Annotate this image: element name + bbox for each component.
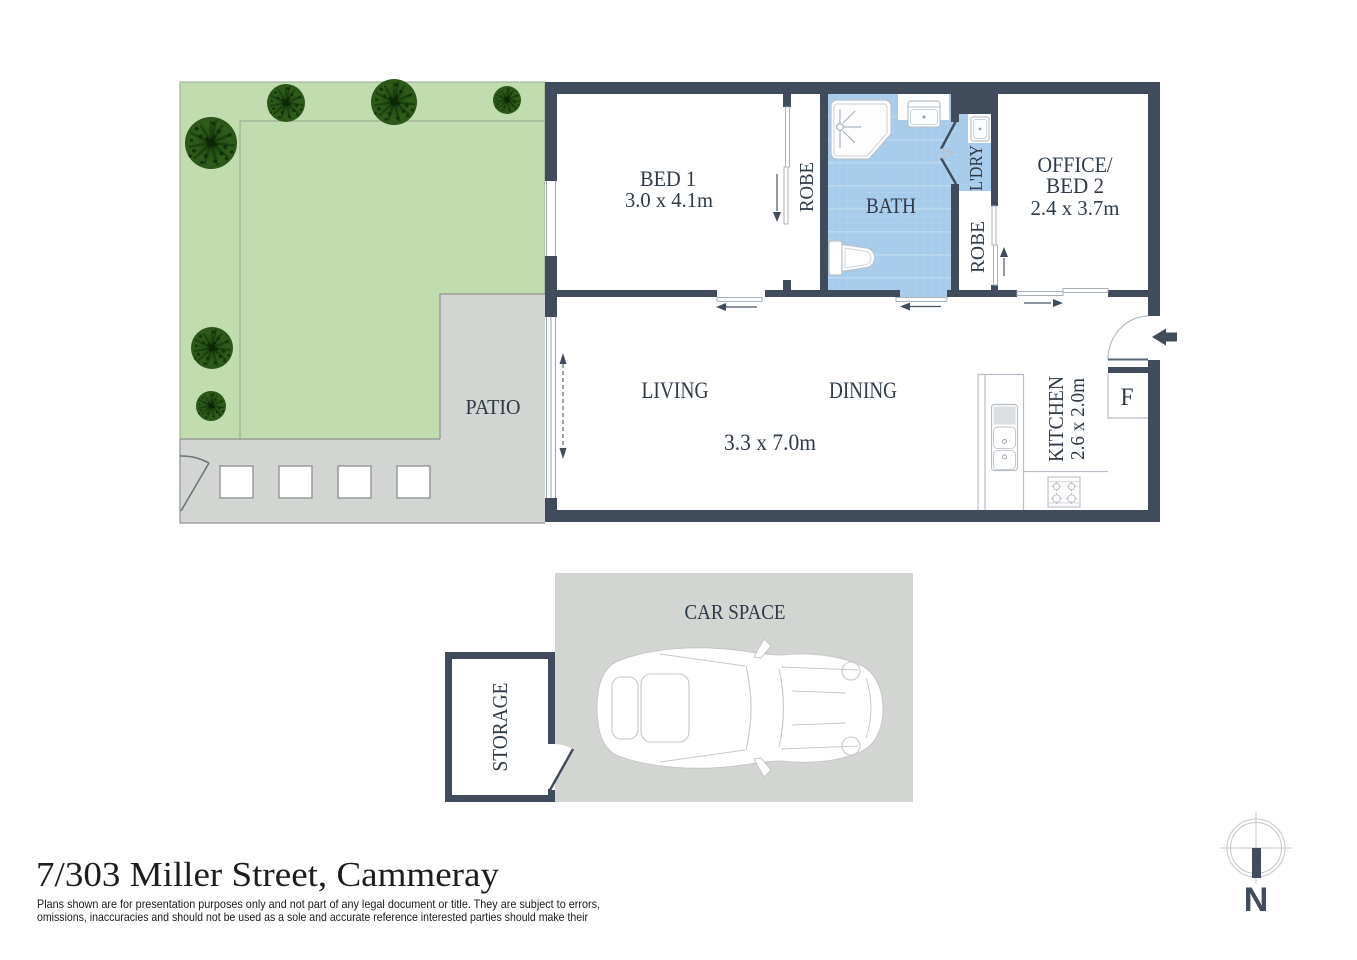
svg-text:2.6 x 2.0m: 2.6 x 2.0m xyxy=(1067,378,1089,460)
svg-text:F: F xyxy=(1121,384,1134,411)
svg-text:DINING: DINING xyxy=(829,378,897,403)
svg-text:N: N xyxy=(1244,881,1269,919)
svg-text:3.3 x 7.0m: 3.3 x 7.0m xyxy=(724,430,816,455)
svg-text:STORAGE: STORAGE xyxy=(488,683,512,772)
svg-text:ROBE: ROBE xyxy=(968,221,989,273)
svg-text:KITCHEN: KITCHEN xyxy=(1044,376,1068,462)
svg-text:omissions, inaccuracies and sh: omissions, inaccuracies and should not b… xyxy=(37,910,588,924)
svg-text:ROBE: ROBE xyxy=(797,162,818,212)
svg-text:3.0 x 4.1m: 3.0 x 4.1m xyxy=(625,188,713,212)
svg-text:L'DRY: L'DRY xyxy=(966,145,986,191)
svg-text:CAR SPACE: CAR SPACE xyxy=(685,600,786,624)
svg-text:Plans shown are for presentati: Plans shown are for presentation purpose… xyxy=(37,897,600,911)
svg-text:BATH: BATH xyxy=(866,193,916,218)
svg-text:PATIO: PATIO xyxy=(466,395,521,419)
svg-text:BED 2: BED 2 xyxy=(1046,173,1104,198)
svg-text:7/303 Miller Street, Cammeray: 7/303 Miller Street, Cammeray xyxy=(36,855,500,894)
svg-text:LIVING: LIVING xyxy=(642,378,709,403)
svg-text:2.4 x 3.7m: 2.4 x 3.7m xyxy=(1031,196,1120,220)
